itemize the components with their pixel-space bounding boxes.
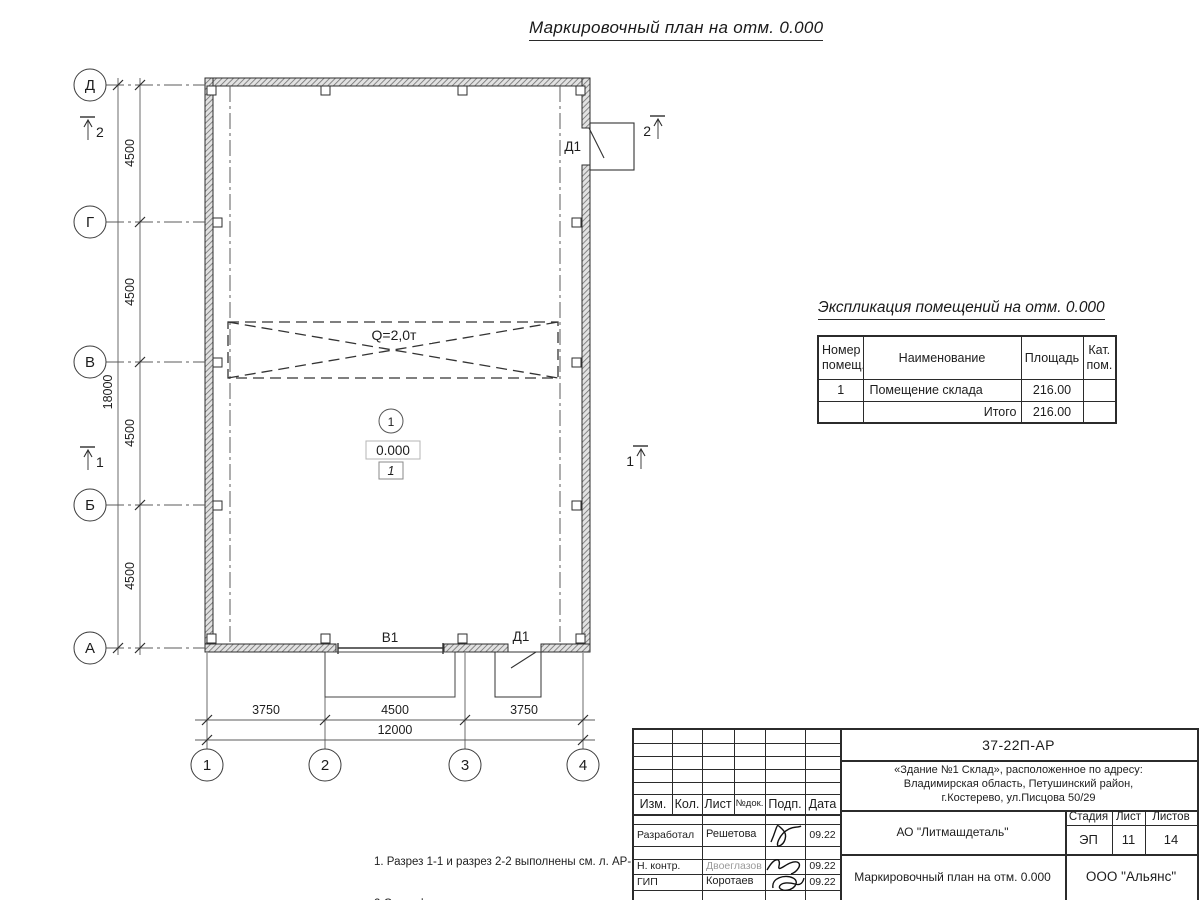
date-developer: 09.22 (805, 824, 840, 846)
col-header-room-number: Номер помещ. (818, 336, 863, 379)
name-ncontrol: Двоеглазов (706, 859, 764, 874)
company: АО "Литмашдеталь" (840, 810, 1065, 854)
room-num-cell: 1 (818, 379, 863, 401)
axis-label-d: Д (85, 77, 95, 94)
address-line-2: Владимирская область, Петушинский район, (840, 777, 1197, 791)
role-ncontrol: Н. контр. (637, 859, 701, 874)
col-kol: Кол. (672, 794, 702, 814)
section-marker-2-right (650, 116, 665, 139)
date-ncontrol: 09.22 (805, 859, 840, 874)
section-marker-1-left (80, 447, 95, 470)
left-axis-lines (106, 78, 205, 655)
ramp-outline (325, 652, 455, 697)
project-address: «Здание №1 Склад», расположенное по адре… (840, 763, 1197, 805)
section-1-left-label: 1 (96, 454, 104, 470)
section-2-right-label: 2 (643, 123, 651, 139)
title-block: Изм. Кол. Лист №док. Подп. Дата Разработ… (632, 728, 1199, 900)
col-podp: Подп. (765, 794, 805, 814)
note-line-1: 1. Разрез 1-1 и разрез 2-2 выполнены см.… (374, 855, 647, 869)
col-ndok: №док. (734, 794, 765, 814)
axis-label-3: 3 (461, 757, 469, 774)
axis-label-v: В (85, 354, 95, 371)
room-number: 1 (388, 415, 395, 429)
sheets-value: 14 (1145, 825, 1197, 854)
stage-label: Стадия (1065, 810, 1112, 825)
section-marker-2-left (80, 117, 95, 140)
sheets-label: Листов (1145, 810, 1197, 825)
sheet-label: Лист (1112, 810, 1145, 825)
dim-left-2: 4500 (123, 278, 137, 306)
door-bottom-label: Д1 (513, 629, 530, 644)
door-top-right (589, 123, 634, 170)
door-top-label: Д1 (564, 139, 581, 154)
address-line-3: г.Костерево, ул.Писцова 50/29 (840, 791, 1197, 805)
address-line-1: «Здание №1 Склад», расположенное по адре… (840, 763, 1197, 777)
dim-left-4: 4500 (123, 562, 137, 590)
notes: 1. Разрез 1-1 и разрез 2-2 выполнены см.… (374, 827, 647, 900)
pilasters (207, 86, 585, 643)
signature-developer (765, 816, 805, 850)
stage-value: ЭП (1065, 825, 1112, 854)
section-1-right-label: 1 (626, 453, 634, 469)
room-area-cell: 216.00 (1021, 379, 1083, 401)
sheet-value: 11 (1112, 825, 1145, 854)
walls (205, 78, 590, 652)
sheet-title: Маркировочный план на отм. 0.000 (840, 854, 1065, 900)
dim-left-total: 18000 (101, 375, 115, 410)
dim-left-1: 4500 (123, 139, 137, 167)
role-gip: ГИП (637, 874, 701, 890)
room-name-cell: Помещение склада (863, 379, 1021, 401)
date-gip: 09.22 (805, 874, 840, 890)
role-developer: Разработал (637, 824, 701, 846)
organization: ООО "Альянс" (1065, 854, 1197, 900)
col-header-category: Кат. пом. (1083, 336, 1116, 379)
crane-rails (230, 86, 560, 644)
table-total-row: Итого 216.00 (818, 401, 1116, 423)
axis-label-4: 4 (579, 757, 587, 774)
door-bottom (495, 652, 541, 697)
gate-label: В1 (382, 630, 399, 645)
col-data: Дата (805, 794, 840, 814)
col-izm: Изм. (634, 794, 672, 814)
drawing-sheet: Маркировочный план на отм. 0.000 (0, 0, 1200, 900)
dim-bottom-total: 12000 (378, 723, 413, 737)
section-marker-1-right (633, 446, 648, 469)
total-label-cell: Итого (863, 401, 1021, 423)
bottom-axis-bubbles (191, 749, 599, 781)
section-2-left-label: 2 (96, 124, 104, 140)
floor-type: 1 (388, 464, 395, 478)
col-list: Лист (702, 794, 734, 814)
axis-label-g: Г (86, 214, 94, 231)
explication-title: Экспликация помещений на отм. 0.000 (818, 299, 1105, 320)
dim-bottom-1: 3750 (252, 703, 280, 717)
dim-bottom-2: 4500 (381, 703, 409, 717)
signature-gip (763, 854, 807, 896)
total-area-cell: 216.00 (1021, 401, 1083, 423)
axis-label-2: 2 (321, 757, 329, 774)
col-header-area: Площадь (1021, 336, 1083, 379)
explication-table: Номер помещ. Наименование Площадь Кат. п… (817, 335, 1117, 424)
axis-label-a: А (85, 640, 95, 657)
dim-bottom-3: 3750 (510, 703, 538, 717)
doc-number: 37-22П-АР (840, 730, 1197, 760)
room-elevation: 0.000 (376, 443, 410, 458)
name-gip: Коротаев (706, 874, 764, 890)
axis-label-b: Б (85, 497, 95, 514)
room-cat-cell (1083, 379, 1116, 401)
dim-left-3: 4500 (123, 419, 137, 447)
axis-label-1: 1 (203, 757, 211, 774)
crane-capacity-label: Q=2,0т (372, 327, 418, 343)
table-row: 1 Помещение склада 216.00 (818, 379, 1116, 401)
name-developer: Решетова (706, 824, 764, 846)
col-header-name: Наименование (863, 336, 1021, 379)
